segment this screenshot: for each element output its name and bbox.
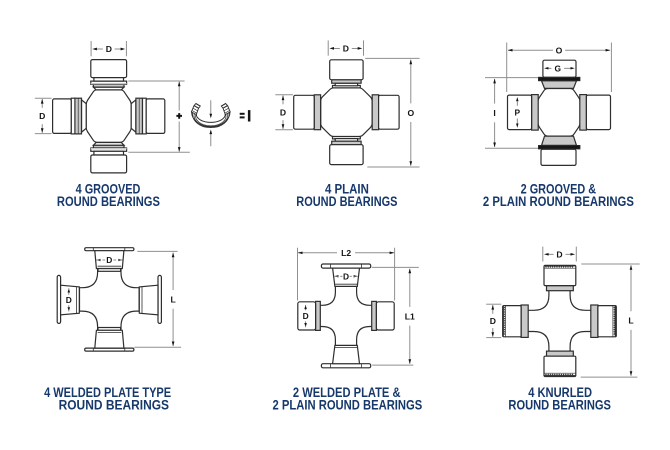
svg-text:O: O [556,45,563,55]
svg-text:L1: L1 [405,311,415,321]
svg-text:ROUND BEARINGS: ROUND BEARINGS [296,194,397,210]
svg-text:D: D [39,111,45,121]
svg-text:L2: L2 [341,248,351,258]
svg-text:D: D [343,44,349,54]
svg-text:D: D [106,44,112,54]
svg-text:D: D [280,107,286,117]
svg-text:L: L [170,294,175,304]
svg-text:P: P [515,107,521,117]
svg-text:2 PLAIN ROUND BEARINGS: 2 PLAIN ROUND BEARINGS [483,194,634,209]
svg-text:G: G [555,64,562,74]
svg-text:D: D [66,295,72,305]
svg-text:2 PLAIN ROUND BEARINGS: 2 PLAIN ROUND BEARINGS [273,397,423,412]
svg-text:D: D [343,271,349,281]
svg-text:ROUND BEARINGS: ROUND BEARINGS [508,397,611,412]
svg-text:ROUND BEARINGS: ROUND BEARINGS [59,397,170,413]
svg-text:O: O [407,108,414,118]
svg-text:D: D [303,311,309,321]
svg-text:L: L [628,316,633,326]
svg-text:D: D [490,316,496,326]
svg-text:ROUND BEARINGS: ROUND BEARINGS [57,194,160,209]
svg-text:D: D [556,249,562,259]
svg-text:D: D [106,255,112,265]
svg-text:I: I [493,108,495,118]
